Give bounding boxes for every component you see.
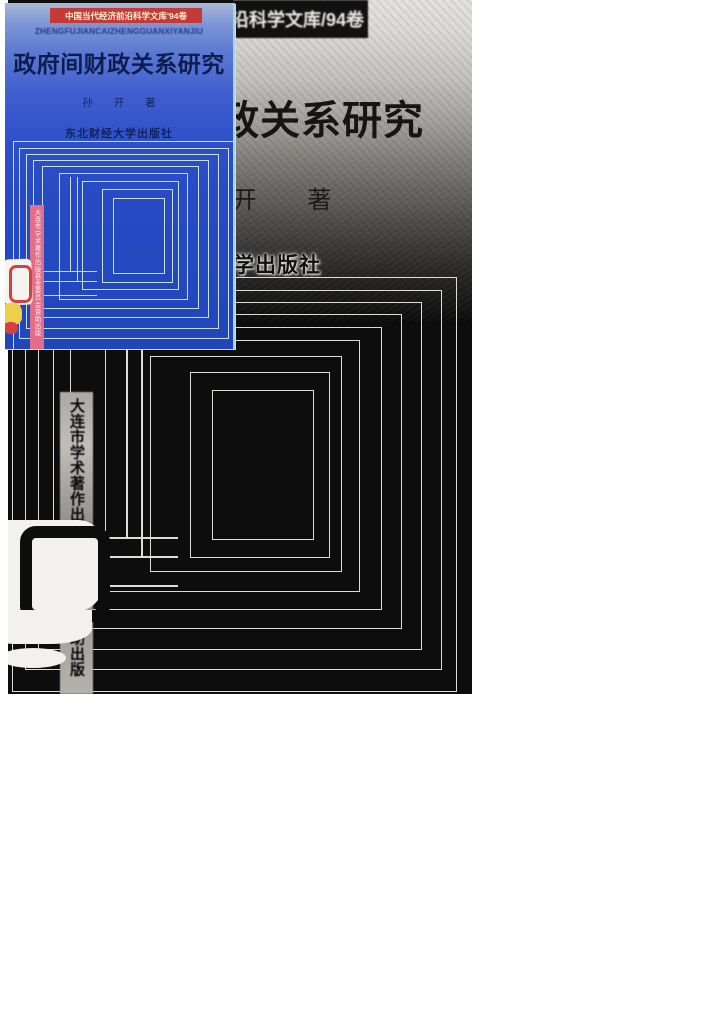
pattern-rectangle xyxy=(113,198,165,274)
pattern-vline xyxy=(70,177,71,272)
pattern-vline xyxy=(126,349,128,538)
scan-logo-artifact-crescent xyxy=(8,648,66,668)
publisher-logo xyxy=(5,259,36,339)
color-cover-inset: 中国当代经济前沿科学文库'94卷 ZHENGFUJIANCAIZHENGGUAN… xyxy=(5,3,235,349)
inset-publisher-line: 东北财经大学出版社 xyxy=(5,125,233,141)
inset-pinyin-line: ZHENGFUJIANCAIZHENGGUANXIYANJIU xyxy=(5,27,233,36)
inset-book-title: 政府间财政关系研究 xyxy=(5,45,233,79)
scan-logo-artifact xyxy=(8,510,118,668)
publisher-logo-red-seal xyxy=(5,322,18,334)
pattern-rectangle xyxy=(212,390,314,540)
inset-author-line: 孙 开 著 xyxy=(5,95,233,110)
scan-logo-artifact-mid xyxy=(8,610,92,644)
scanned-book-cover-page: 中国当代经济前沿科学文库/94卷 政府间财政关系研究 孙 开 著 东北财经大学出… xyxy=(0,0,710,1009)
pattern-vline xyxy=(77,177,78,281)
scan-logo-artifact-frame xyxy=(20,526,110,622)
inset-series-banner: 中国当代经济前沿科学文库'94卷 xyxy=(50,8,202,23)
inset-series-banner-label: 中国当代经济前沿科学文库'94卷 xyxy=(65,10,187,22)
pattern-vline xyxy=(141,349,143,556)
publisher-logo-frame xyxy=(9,265,32,303)
